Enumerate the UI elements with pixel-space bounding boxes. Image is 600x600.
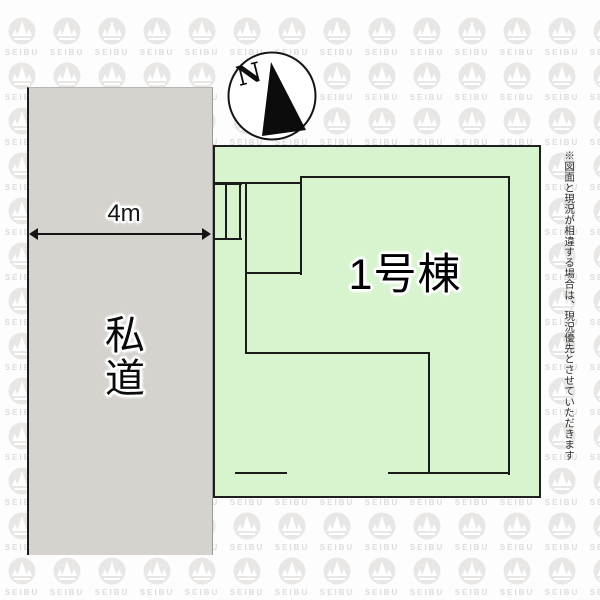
svg-text:SEIBU: SEIBU bbox=[500, 588, 534, 597]
building-outline-segment bbox=[428, 352, 430, 474]
svg-text:SEIBU: SEIBU bbox=[590, 273, 600, 282]
svg-text:SEIBU: SEIBU bbox=[590, 228, 600, 237]
compass-icon: N bbox=[225, 50, 321, 146]
porch-box-segment bbox=[213, 183, 242, 185]
building-label: 1号棟 bbox=[338, 252, 472, 299]
porch-box-segment bbox=[239, 183, 241, 240]
arrow-right-head-icon bbox=[202, 228, 211, 240]
svg-text:SEIBU: SEIBU bbox=[320, 93, 354, 102]
svg-text:SEIBU: SEIBU bbox=[275, 543, 309, 552]
svg-text:SEIBU: SEIBU bbox=[545, 93, 579, 102]
svg-text:SEIBU: SEIBU bbox=[320, 588, 354, 597]
svg-text:SEIBU: SEIBU bbox=[140, 588, 174, 597]
svg-text:SEIBU: SEIBU bbox=[590, 543, 600, 552]
svg-text:SEIBU: SEIBU bbox=[320, 543, 354, 552]
svg-text:SEIBU: SEIBU bbox=[590, 588, 600, 597]
svg-text:SEIBU: SEIBU bbox=[230, 588, 264, 597]
svg-text:SEIBU: SEIBU bbox=[185, 48, 219, 57]
building-outline-segment bbox=[508, 176, 510, 475]
svg-text:SEIBU: SEIBU bbox=[410, 93, 444, 102]
road-width-label: 4m bbox=[84, 200, 164, 228]
svg-text:SEIBU: SEIBU bbox=[230, 498, 264, 507]
svg-text:SEIBU: SEIBU bbox=[455, 498, 489, 507]
svg-text:SEIBU: SEIBU bbox=[545, 543, 579, 552]
site-plan-page: { "watermark": { "brand_text": "SEIBU", … bbox=[0, 0, 600, 600]
disclaimer-note: ※図面と現況が相違する場合は、現況優先とさせていただきます bbox=[562, 150, 575, 486]
building-outline-segment bbox=[300, 176, 302, 275]
lot-area bbox=[213, 145, 541, 498]
building-outline-segment bbox=[388, 472, 510, 474]
svg-text:SEIBU: SEIBU bbox=[365, 93, 399, 102]
private-road-label: 私道 bbox=[101, 314, 141, 400]
svg-text:SEIBU: SEIBU bbox=[365, 543, 399, 552]
building-outline-segment bbox=[245, 352, 430, 354]
svg-text:SEIBU: SEIBU bbox=[275, 588, 309, 597]
svg-text:SEIBU: SEIBU bbox=[590, 48, 600, 57]
svg-text:SEIBU: SEIBU bbox=[5, 588, 39, 597]
svg-text:SEIBU: SEIBU bbox=[545, 48, 579, 57]
svg-text:SEIBU: SEIBU bbox=[455, 543, 489, 552]
building-outline-segment bbox=[300, 176, 510, 178]
svg-text:SEIBU: SEIBU bbox=[410, 48, 444, 57]
svg-text:SEIBU: SEIBU bbox=[365, 498, 399, 507]
svg-text:SEIBU: SEIBU bbox=[545, 498, 579, 507]
svg-text:SEIBU: SEIBU bbox=[410, 498, 444, 507]
porch-box-segment bbox=[213, 238, 242, 240]
svg-text:SEIBU: SEIBU bbox=[230, 543, 264, 552]
svg-text:SEIBU: SEIBU bbox=[500, 498, 534, 507]
svg-text:SEIBU: SEIBU bbox=[590, 453, 600, 462]
svg-text:SEIBU: SEIBU bbox=[455, 93, 489, 102]
svg-text:SEIBU: SEIBU bbox=[590, 93, 600, 102]
svg-text:SEIBU: SEIBU bbox=[590, 498, 600, 507]
svg-text:SEIBU: SEIBU bbox=[410, 588, 444, 597]
svg-text:SEIBU: SEIBU bbox=[545, 588, 579, 597]
building-outline-segment bbox=[245, 272, 302, 274]
road-width-dimension-arrow bbox=[29, 228, 211, 240]
svg-text:SEIBU: SEIBU bbox=[545, 138, 579, 147]
svg-text:SEIBU: SEIBU bbox=[275, 498, 309, 507]
svg-text:SEIBU: SEIBU bbox=[365, 588, 399, 597]
svg-text:SEIBU: SEIBU bbox=[365, 48, 399, 57]
svg-text:SEIBU: SEIBU bbox=[50, 48, 84, 57]
svg-text:SEIBU: SEIBU bbox=[95, 588, 129, 597]
svg-text:SEIBU: SEIBU bbox=[320, 48, 354, 57]
svg-text:SEIBU: SEIBU bbox=[185, 588, 219, 597]
building-outline-segment bbox=[245, 182, 247, 354]
svg-text:SEIBU: SEIBU bbox=[5, 48, 39, 57]
svg-text:SEIBU: SEIBU bbox=[590, 408, 600, 417]
porch-box-segment bbox=[225, 183, 227, 240]
svg-text:SEIBU: SEIBU bbox=[95, 48, 129, 57]
svg-text:SEIBU: SEIBU bbox=[500, 93, 534, 102]
svg-text:SEIBU: SEIBU bbox=[50, 588, 84, 597]
arrow-line bbox=[33, 233, 207, 235]
parking-line-segment bbox=[235, 472, 287, 474]
svg-text:SEIBU: SEIBU bbox=[410, 543, 444, 552]
svg-text:SEIBU: SEIBU bbox=[500, 48, 534, 57]
svg-text:SEIBU: SEIBU bbox=[590, 318, 600, 327]
svg-text:SEIBU: SEIBU bbox=[455, 48, 489, 57]
svg-text:SEIBU: SEIBU bbox=[590, 363, 600, 372]
svg-text:SEIBU: SEIBU bbox=[500, 543, 534, 552]
svg-text:SEIBU: SEIBU bbox=[320, 498, 354, 507]
svg-text:SEIBU: SEIBU bbox=[590, 138, 600, 147]
svg-text:SEIBU: SEIBU bbox=[590, 183, 600, 192]
svg-text:SEIBU: SEIBU bbox=[455, 588, 489, 597]
svg-text:SEIBU: SEIBU bbox=[140, 48, 174, 57]
